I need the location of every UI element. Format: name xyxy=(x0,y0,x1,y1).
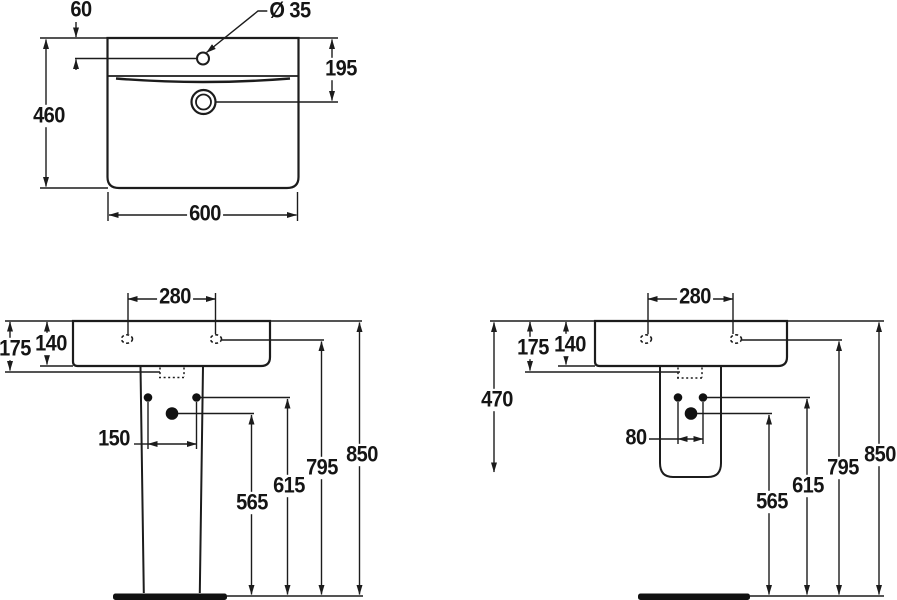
dim-semi-rim-thickness: 140 xyxy=(552,334,588,356)
dim-semi-rim-height: 850 xyxy=(862,444,897,466)
dim-plan-depth: 460 xyxy=(31,105,67,127)
dim-semi-fixing-hole-spacing: 80 xyxy=(623,427,648,449)
dim-plan-tap-hole-offset: 60 xyxy=(68,0,93,21)
technical-drawing-page: 60 Ø 35 195 460 600 280 175 140 150 565 … xyxy=(0,0,897,600)
plan-view-drawing xyxy=(40,11,338,221)
dim-pedestal-tap-hole-height: 795 xyxy=(304,457,340,479)
dim-plan-tap-hole-diameter: Ø 35 xyxy=(267,0,312,22)
dim-semi-pedestal-height: 470 xyxy=(479,389,515,411)
dim-semi-tap-hole-spacing: 280 xyxy=(677,286,713,308)
dim-pedestal-rim-thickness: 140 xyxy=(33,333,69,355)
dim-pedestal-fixing-height: 615 xyxy=(271,475,307,497)
dim-pedestal-fixing-hole-spacing: 150 xyxy=(96,428,132,450)
dim-semi-tap-hole-height: 795 xyxy=(825,457,861,479)
dim-pedestal-waste-height: 565 xyxy=(234,492,270,514)
dim-pedestal-tap-hole-spacing: 280 xyxy=(157,286,193,308)
dim-plan-overflow-distance: 195 xyxy=(323,58,359,80)
dim-pedestal-rim-height: 850 xyxy=(344,444,380,466)
dim-semi-rim-to-underside: 175 xyxy=(515,337,551,359)
dim-pedestal-rim-to-underside: 175 xyxy=(0,338,33,360)
dim-semi-fixing-height: 615 xyxy=(790,475,826,497)
dim-plan-width: 600 xyxy=(187,203,223,225)
dim-semi-waste-height: 565 xyxy=(754,491,790,513)
